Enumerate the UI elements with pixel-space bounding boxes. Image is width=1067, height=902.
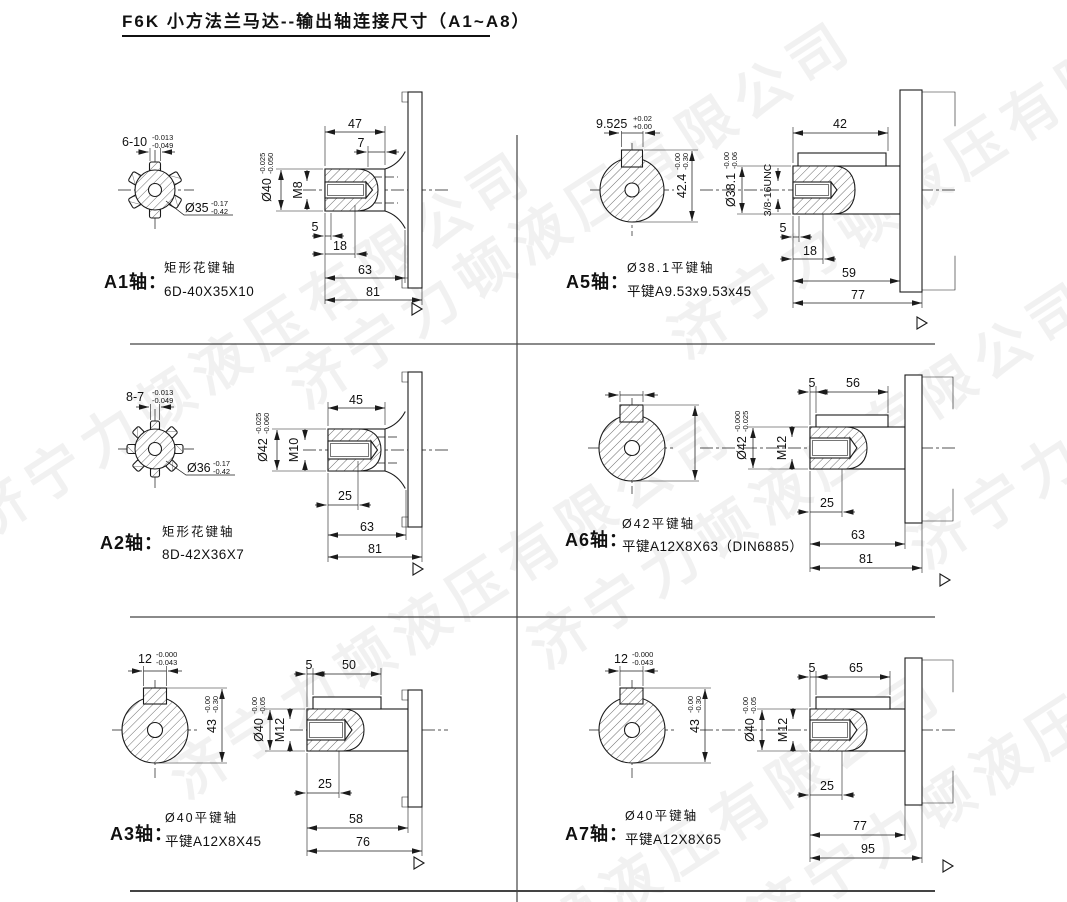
a3-dim-50: 50 <box>342 658 356 672</box>
a7-dim-25: 25 <box>820 779 834 793</box>
a6-desc1: Ø42平键轴 <box>622 516 695 531</box>
a5-dia-dim-group: Ø38.1 -0.00 -0.06 <box>722 152 739 207</box>
a7-height-dim-group: 43 -0.00 -0.30 <box>686 696 703 733</box>
a7-dim-65: 65 <box>849 661 863 675</box>
a1-dim-18: 18 <box>333 239 347 253</box>
a3-height-dim: 43 <box>205 719 219 733</box>
a6-dia-dim-group: Ø42 -0.000 -0.025 <box>733 411 750 460</box>
a7-height-tol-l: -0.30 <box>694 696 703 713</box>
a6-axis-label: A6轴： <box>565 529 628 550</box>
a3-desc2: 平键A12X8X45 <box>165 834 262 849</box>
a3-dim-5: 5 <box>306 658 313 672</box>
drawing-sheet: 济宁力顿液压有限公司 济宁力顿液压有限公司 济宁力顿液压有限公司 济宁力顿液压有… <box>0 0 1067 902</box>
a3-axis-label: A3轴： <box>110 823 173 844</box>
a3-dim-25: 25 <box>318 777 332 791</box>
a7-desc2: 平键A12X8X65 <box>625 832 722 847</box>
a7-thread-dim: M12 <box>776 718 790 742</box>
a7-dia-dim: Ø40 <box>743 718 757 742</box>
panel-a1: 6-10 -0.013 -0.049 Ø35 -0.17 -0.42 <box>104 92 448 315</box>
a5-height-dim: 42.4 <box>675 174 689 198</box>
a3-dia-tol-l: -0.05 <box>258 697 267 714</box>
a3-dim-58: 58 <box>349 812 363 826</box>
a6-dim-56: 56 <box>846 376 860 390</box>
a7-dim-5: 5 <box>809 661 816 675</box>
a3-dia-dim-group: Ø40 -0.00 -0.05 <box>250 697 267 742</box>
a1-desc1: 矩形花键轴 <box>164 260 237 275</box>
a7-dim-95: 95 <box>861 842 875 856</box>
a2-dim-25: 25 <box>338 489 352 503</box>
a5-dim-5: 5 <box>780 221 787 235</box>
a1-desc2: 6D-40X35X10 <box>164 284 254 299</box>
a3-desc1: Ø40平键轴 <box>165 810 238 825</box>
a6-dia-dim: Ø42 <box>735 436 749 460</box>
a3-key-dim: 12 <box>138 652 152 666</box>
panel-a5: 9.525 +0.02 +0.00 42.4 -0.00 -0.30 <box>566 90 956 329</box>
a5-keyed-end-view <box>600 150 664 222</box>
a2-dia42-dim-group: Ø42 -0.025 -0.060 <box>254 413 271 462</box>
a6-thread-dim: M12 <box>775 436 789 460</box>
a3-key-tol-l: -0.043 <box>156 658 177 667</box>
a3-thread-dim: M12 <box>273 718 287 742</box>
a1-dia35-tol-l: -0.42 <box>211 207 228 216</box>
a5-side-view <box>700 90 956 292</box>
a5-axis-label: A5轴： <box>566 271 629 292</box>
a6-dia-tol-l: -0.025 <box>741 411 750 432</box>
a5-thread-dim: 3/8-16UNC <box>762 163 774 216</box>
a7-desc1: Ø40平键轴 <box>625 808 698 823</box>
a1-thread-dim: M8 <box>291 181 305 198</box>
a1-dim-63: 63 <box>358 263 372 277</box>
a5-key-dim: 9.525 <box>596 117 627 131</box>
a5-dia-tol-l: -0.06 <box>730 152 739 169</box>
a2-dia36-dim: Ø36 <box>187 461 211 475</box>
a2-dim-81: 81 <box>368 542 382 556</box>
a5-desc1: Ø38.1平键轴 <box>627 260 715 275</box>
a7-height-dim: 43 <box>688 719 702 733</box>
a6-keyed-end-view <box>599 405 665 481</box>
a1-dim-7: 7 <box>358 136 365 150</box>
a7-dia-dim-group: Ø40 -0.00 -0.05 <box>741 697 758 742</box>
a7-key-tol-l: -0.043 <box>632 658 653 667</box>
a5-dim-18: 18 <box>803 244 817 258</box>
a5-height-dim-group: 42.4 -0.00 -0.30 <box>673 153 690 198</box>
section-flag-icon <box>412 303 422 315</box>
a2-desc2: 8D-42X36X7 <box>162 547 244 562</box>
a1-axis-label: A1轴： <box>104 271 167 292</box>
a1-spline-tol-l: -0.049 <box>152 141 173 150</box>
a5-desc2: 平键A9.53x9.53x45 <box>627 284 752 299</box>
a5-key-tol-l: +0.00 <box>633 122 652 131</box>
a1-dia40-tol-l: -0.050 <box>266 153 275 174</box>
a2-spline-dim: 8-7 <box>126 390 144 404</box>
a7-key-dim: 12 <box>614 652 628 666</box>
a3-keyed-end-view <box>122 688 188 763</box>
section-flag-icon <box>917 317 927 329</box>
section-flag-icon <box>943 860 953 872</box>
a1-dim-81: 81 <box>366 285 380 299</box>
a3-height-dim-group: 43 -0.00 -0.30 <box>203 696 220 733</box>
a1-dia40-dim: Ø40 <box>260 178 274 202</box>
panel-a7: 12 -0.000 -0.043 43 -0.00 -0.30 <box>565 650 956 872</box>
a6-dim-63: 63 <box>851 528 865 542</box>
a2-dia42-dim: Ø42 <box>256 438 270 462</box>
a1-dia35-dim: Ø35 <box>185 201 209 215</box>
a6-desc2: 平键A12X8X63（DIN6885） <box>622 539 803 554</box>
a1-dia40-dim-group: Ø40 -0.025 -0.050 <box>258 153 275 202</box>
a1-dim-47: 47 <box>348 117 362 131</box>
a2-desc1: 矩形花键轴 <box>162 524 235 539</box>
a7-dim-77: 77 <box>853 819 867 833</box>
panel-a3: 12 -0.000 -0.043 43 -0.00 -0.30 <box>110 650 448 869</box>
a3-dia-dim: Ø40 <box>252 718 266 742</box>
panel-a6: Ø42 -0.000 -0.025 M12 5 56 25 <box>565 375 956 586</box>
a5-height-tol-l: -0.30 <box>681 153 690 170</box>
a1-spline-end-view <box>128 162 182 218</box>
section-flag-icon <box>414 857 424 869</box>
a7-keyed-end-view <box>599 688 665 763</box>
a2-spline-tol-l: -0.049 <box>152 396 173 405</box>
a2-dim-45: 45 <box>349 393 363 407</box>
panel-a2: 8-7 -0.013 -0.049 Ø36 -0.17 -0.42 <box>100 372 448 575</box>
a2-dim-63: 63 <box>360 520 374 534</box>
a2-spline-end-view <box>127 421 183 477</box>
a2-dia36-tol-l: -0.42 <box>213 467 230 476</box>
a1-spline-dim: 6-10 <box>122 135 147 149</box>
a2-side-view <box>303 372 448 527</box>
a6-dim-25: 25 <box>820 496 834 510</box>
a3-height-tol-l: -0.30 <box>211 696 220 713</box>
section-flag-icon <box>413 563 423 575</box>
a6-dim-5: 5 <box>809 376 816 390</box>
a6-dim-81: 81 <box>859 552 873 566</box>
a2-axis-label: A2轴： <box>100 532 163 553</box>
a5-dia-dim: Ø38.1 <box>724 173 738 207</box>
a3-dim-76: 76 <box>356 835 370 849</box>
a7-dia-tol-l: -0.05 <box>749 697 758 714</box>
a2-thread-dim: M10 <box>287 438 301 462</box>
section-flag-icon <box>940 574 950 586</box>
a3-side-view <box>290 690 448 807</box>
a5-dim-77: 77 <box>851 288 865 302</box>
a1-dim-5: 5 <box>312 220 319 234</box>
a5-dim-42: 42 <box>833 117 847 131</box>
a2-dia42-tol-l: -0.060 <box>262 413 271 434</box>
drawing-canvas: 6-10 -0.013 -0.049 Ø35 -0.17 -0.42 <box>0 0 1067 902</box>
a7-axis-label: A7轴： <box>565 823 628 844</box>
a5-dim-59: 59 <box>842 266 856 280</box>
